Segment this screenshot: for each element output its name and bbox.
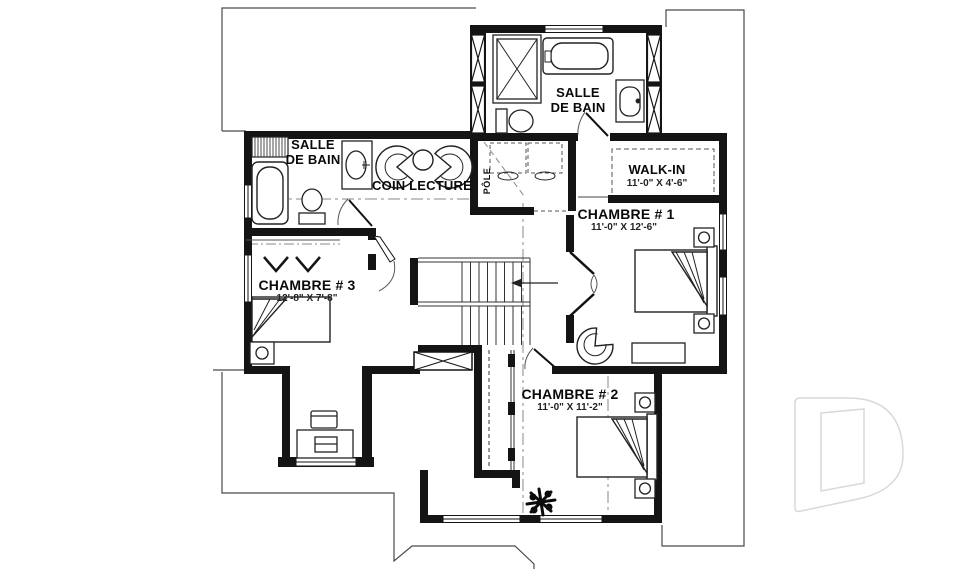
window: [296, 458, 356, 466]
linen-cabinet: [252, 137, 288, 157]
closet-shelves: [490, 143, 568, 211]
door: [525, 348, 558, 370]
nightstand-icon: [694, 314, 714, 333]
bed-icon: [577, 414, 657, 480]
brand-logo-d: [795, 398, 903, 511]
closet-rod-label: PÔLE: [482, 168, 492, 195]
bed-icon: [635, 246, 717, 316]
armchair-icon: [577, 328, 613, 364]
toilet-icon: [496, 109, 533, 133]
floor-plan: SALLEDE BAIN SALLEDE BAIN COIN LECTURE W…: [0, 0, 960, 569]
window: [245, 185, 252, 218]
bathtub-icon: [252, 162, 288, 224]
dresser-icon: [632, 343, 685, 363]
closet-chevrons: [246, 240, 340, 271]
room-label-bath-top: SALLEDE BAIN: [551, 86, 606, 116]
room-label-bath-left: SALLEDE BAIN: [286, 138, 341, 168]
window: [245, 255, 252, 302]
double-door: [570, 252, 597, 316]
nightstand-icon: [694, 228, 714, 247]
room-dims-chambre-2: 11'-0" X 11'-2": [537, 402, 602, 414]
window: [443, 516, 520, 523]
nightstand-icon: [250, 342, 274, 364]
window: [720, 214, 727, 250]
room-label-coin-lecture: COIN LECTURE: [372, 179, 472, 194]
room-label-chambre-2: CHAMBRE # 2: [521, 386, 618, 402]
shower-icon: [493, 35, 541, 103]
nightstand-icon: [635, 393, 655, 412]
plant-icon: [527, 489, 555, 515]
nightstand-icon: [635, 479, 655, 498]
room-dims-chambre-1: 11'-0" X 12'-6": [591, 222, 657, 234]
door: [338, 199, 372, 226]
side-table-icon: [413, 150, 433, 170]
understair-closet: [414, 352, 472, 370]
window: [540, 516, 602, 523]
toilet-icon: [299, 189, 325, 224]
desk-icon: [297, 411, 353, 458]
room-label-chambre-3: CHAMBRE # 3: [258, 277, 355, 293]
sink-icon: [342, 141, 372, 189]
floor-plan-drawing: [0, 0, 960, 569]
room-label-chambre-1: CHAMBRE # 1: [577, 206, 674, 222]
door: [374, 236, 395, 291]
bathtub-icon: [543, 38, 613, 74]
stair-direction-arrow: [511, 279, 558, 288]
room-dims-chambre-3: 12'-8" X 7'-8": [277, 293, 338, 305]
window: [720, 277, 727, 315]
room-dims-walk-in: 11'-0" X 4'-6": [627, 178, 687, 190]
window: [545, 26, 603, 33]
room-label-walk-in: WALK-IN: [629, 163, 686, 178]
sink-icon: [616, 80, 644, 122]
